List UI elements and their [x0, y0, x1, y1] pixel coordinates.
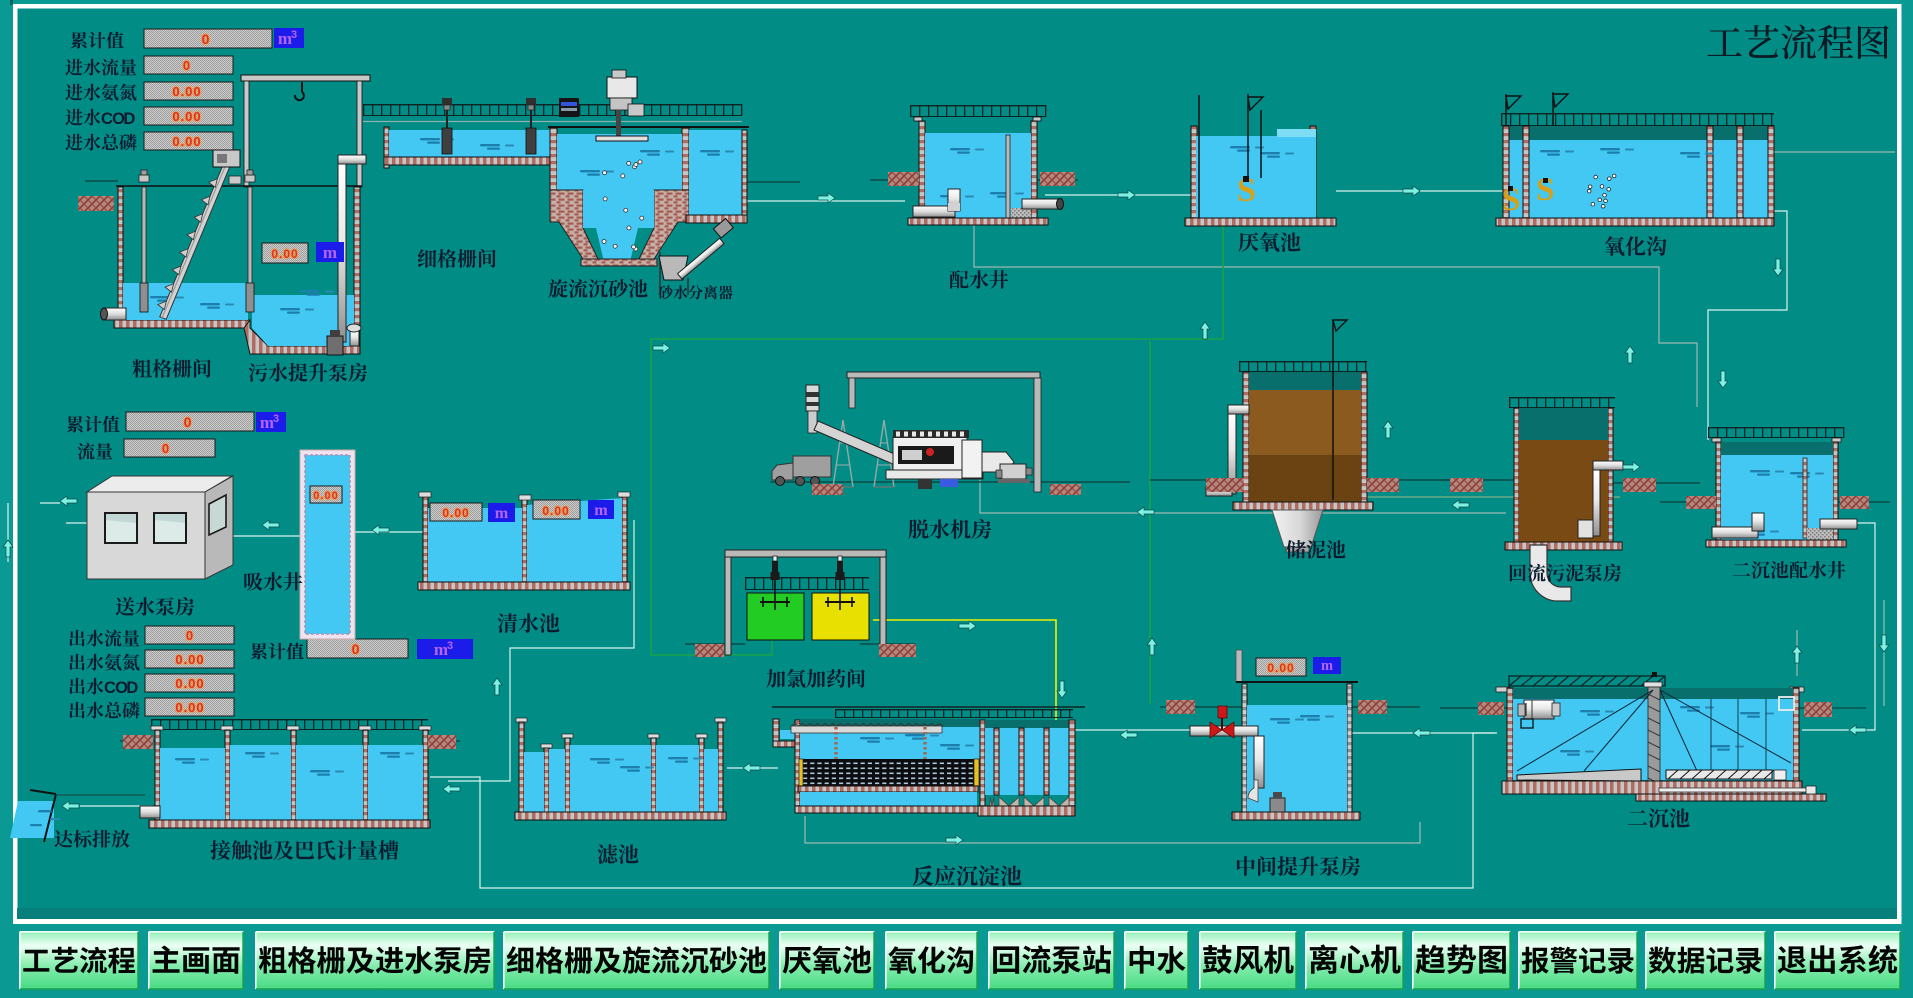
svg-text:0.00: 0.00 [172, 109, 201, 124]
svg-text:3: 3 [273, 413, 279, 425]
svg-text:3: 3 [447, 640, 453, 652]
svg-text:m: m [260, 413, 274, 432]
svg-text:0: 0 [186, 628, 194, 643]
svg-text:m: m [1321, 658, 1333, 674]
svg-text:0: 0 [183, 58, 191, 73]
svg-text:0: 0 [202, 31, 211, 47]
svg-text:0.00: 0.00 [542, 504, 569, 518]
svg-text:m: m [278, 29, 292, 48]
svg-text:0.00: 0.00 [442, 506, 469, 520]
svg-text:C: C [101, 109, 113, 128]
svg-text:0: 0 [352, 641, 361, 657]
svg-text:0: 0 [162, 441, 170, 456]
svg-text:m: m [323, 243, 337, 262]
svg-text:D: D [123, 109, 135, 128]
svg-text:m: m [495, 505, 509, 522]
svg-text:O: O [112, 109, 125, 128]
svg-text:S: S [1536, 172, 1554, 208]
svg-text:O: O [115, 678, 128, 697]
svg-text:0: 0 [184, 414, 193, 430]
svg-text:m: m [594, 502, 608, 519]
svg-text:3: 3 [291, 29, 297, 41]
svg-text:0.00: 0.00 [175, 676, 204, 691]
svg-text:0.00: 0.00 [175, 700, 204, 715]
svg-text:0.00: 0.00 [271, 247, 298, 261]
svg-text:D: D [126, 678, 138, 697]
svg-text:0.00: 0.00 [172, 84, 201, 99]
svg-text:0.00: 0.00 [313, 490, 338, 502]
svg-text:0.00: 0.00 [175, 652, 204, 667]
svg-text:0.00: 0.00 [1267, 661, 1294, 675]
svg-text:C: C [104, 678, 116, 697]
svg-text:0.00: 0.00 [172, 134, 201, 149]
svg-text:m: m [434, 640, 448, 659]
